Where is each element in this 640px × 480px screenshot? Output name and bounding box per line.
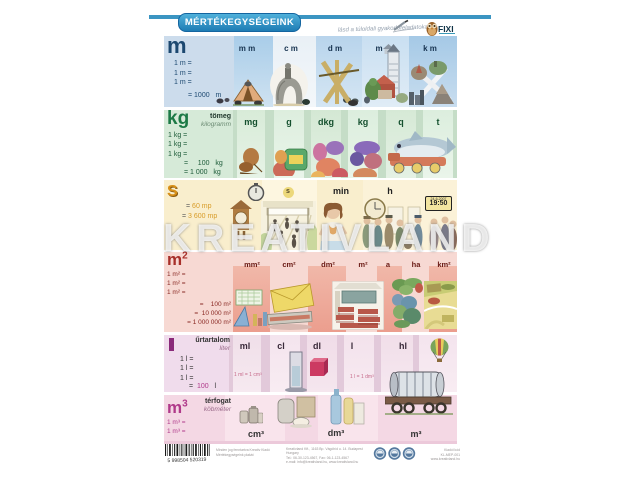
svg-text:5 998504 520319: 5 998504 520319: [167, 457, 206, 463]
